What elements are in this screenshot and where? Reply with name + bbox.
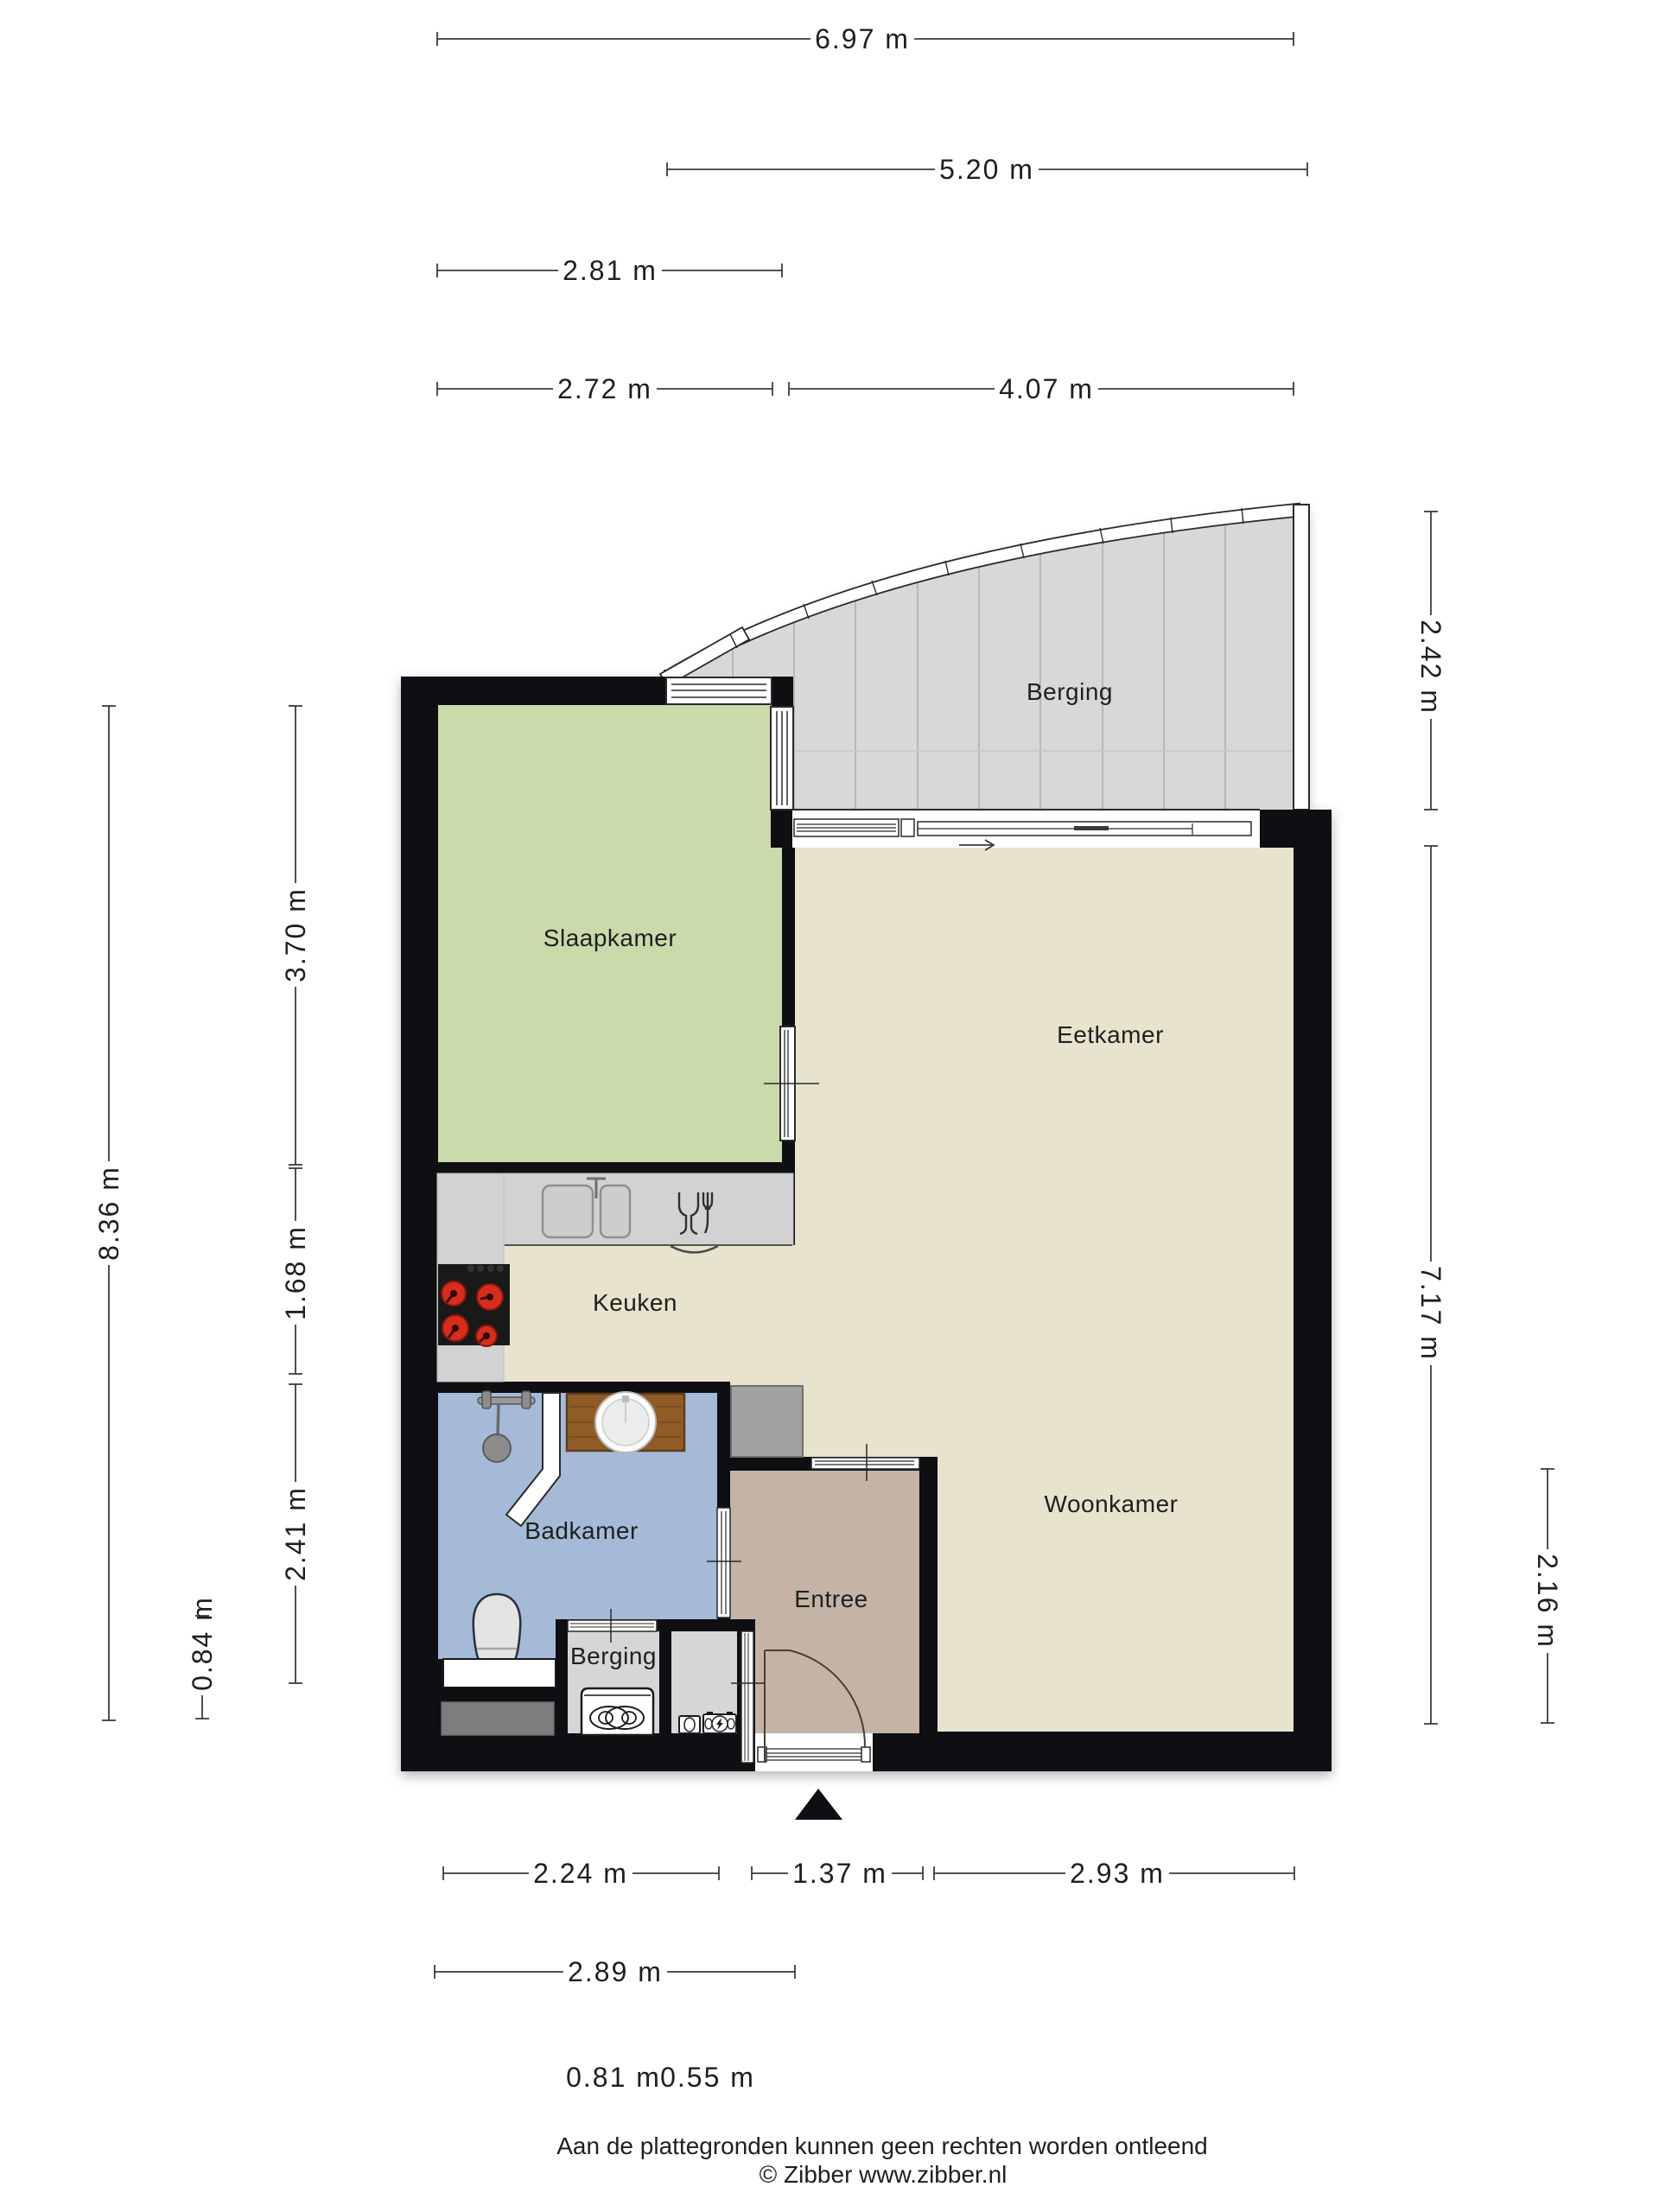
svg-text:2.16 m: 2.16 m bbox=[1532, 1554, 1563, 1649]
svg-text:0.81 m: 0.81 m bbox=[566, 2062, 661, 2093]
svg-text:4.07 m: 4.07 m bbox=[999, 373, 1094, 404]
svg-text:0.55 m: 0.55 m bbox=[660, 2062, 755, 2093]
svg-text:1.68 m: 1.68 m bbox=[280, 1225, 311, 1320]
svg-text:Entree: Entree bbox=[794, 1586, 868, 1612]
svg-text:1.37 m: 1.37 m bbox=[792, 1858, 887, 1889]
svg-text:8.36 m: 8.36 m bbox=[93, 1166, 124, 1261]
svg-text:Berging: Berging bbox=[570, 1643, 657, 1669]
svg-text:© Zibber www.zibber.nl: © Zibber www.zibber.nl bbox=[760, 2161, 1007, 2188]
svg-text:Berging: Berging bbox=[1027, 678, 1113, 705]
svg-text:Eetkamer: Eetkamer bbox=[1057, 1021, 1164, 1048]
svg-text:2.41 m: 2.41 m bbox=[280, 1486, 311, 1581]
svg-text:0.84 m: 0.84 m bbox=[187, 1596, 218, 1691]
svg-text:2.72 m: 2.72 m bbox=[557, 373, 652, 404]
svg-text:Slaapkamer: Slaapkamer bbox=[543, 925, 677, 951]
svg-text:Aan de plattegronden kunnen ge: Aan de plattegronden kunnen geen rechten… bbox=[556, 2133, 1207, 2159]
svg-text:2.93 m: 2.93 m bbox=[1070, 1858, 1165, 1889]
svg-text:2.81 m: 2.81 m bbox=[563, 255, 658, 286]
svg-text:3.70 m: 3.70 m bbox=[280, 887, 311, 982]
svg-text:2.89 m: 2.89 m bbox=[568, 1956, 663, 1987]
svg-text:5.20 m: 5.20 m bbox=[939, 154, 1034, 185]
svg-text:Woonkamer: Woonkamer bbox=[1045, 1491, 1179, 1517]
svg-text:Badkamer: Badkamer bbox=[524, 1517, 639, 1544]
svg-text:7.17 m: 7.17 m bbox=[1415, 1266, 1446, 1361]
svg-text:Keuken: Keuken bbox=[593, 1289, 677, 1316]
svg-text:2.42 m: 2.42 m bbox=[1415, 620, 1446, 715]
svg-text:6.97 m: 6.97 m bbox=[815, 23, 910, 54]
svg-text:2.24 m: 2.24 m bbox=[533, 1858, 628, 1889]
